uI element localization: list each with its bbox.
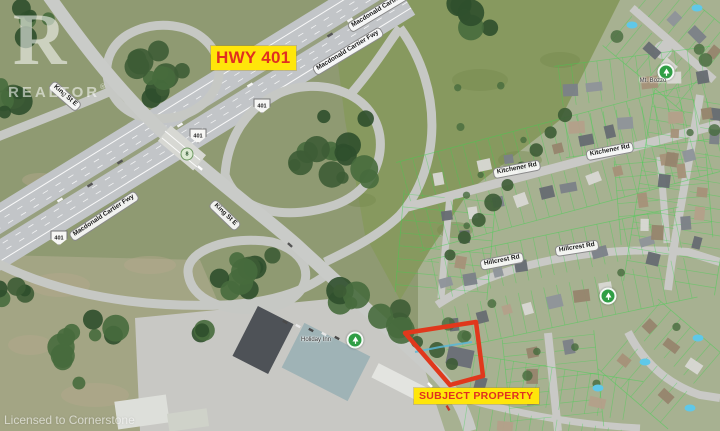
park-poi-icon [600,288,617,305]
aerial-map-image: Macdonald Cartier Fwy Macdonald Cartier … [0,0,720,431]
realtor-watermark: R REALTOR® [8,6,108,101]
license-watermark: Licensed to Cornerstone [4,413,135,427]
hotel-poi-icon [347,332,364,349]
registered-mark: ® [100,84,108,91]
park-poi-label: Mt. Bozzo [640,78,667,84]
hotel-poi-label: Holiday Inn [301,337,331,343]
realtor-watermark-text: REALTOR [8,84,100,101]
subject-property-callout: SUBJECT PROPERTY [414,388,539,404]
hwy-401-callout: HWY 401 [211,46,296,70]
hwy-8-shield: 8 [181,148,194,161]
realtor-logo-icon: R [8,6,62,76]
